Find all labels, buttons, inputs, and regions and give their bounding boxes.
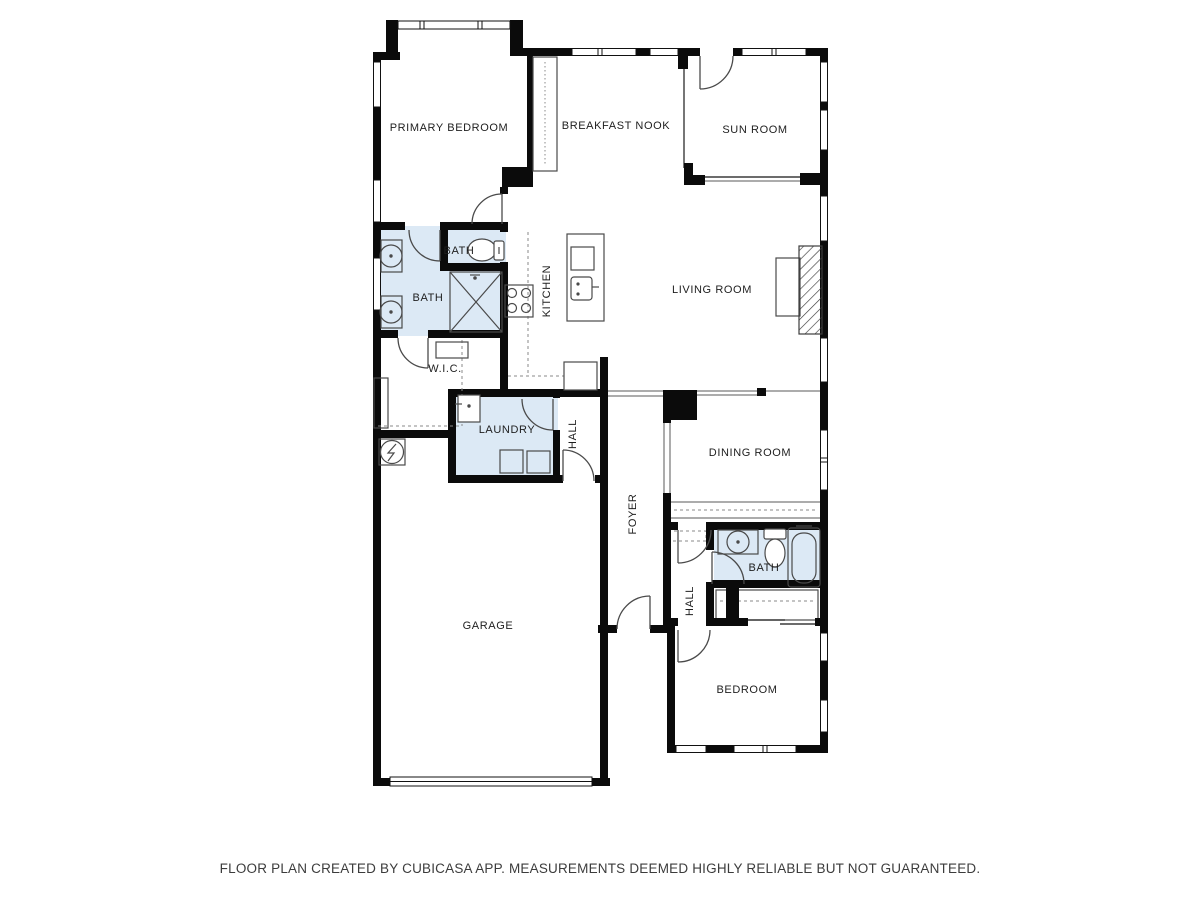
nook-cabinet	[533, 57, 557, 171]
room-label-dining-room: DINING ROOM	[709, 447, 791, 459]
fireplace-icon	[776, 246, 822, 334]
footer-disclaimer: FLOOR PLAN CREATED BY CUBICASA APP. MEAS…	[220, 861, 981, 876]
room-label-bath-upper: BATH	[444, 245, 475, 257]
room-label-bedroom: BEDROOM	[716, 684, 777, 696]
room-label-garage: GARAGE	[463, 620, 514, 632]
room-label-laundry: LAUNDRY	[479, 424, 536, 436]
room-label-hall-lower: HALL	[684, 586, 696, 616]
room-label-wic: W.I.C.	[428, 363, 462, 375]
room-label-sun-room: SUN ROOM	[722, 124, 787, 136]
floor-plan-drawing: PRIMARY BEDROOM BREAKFAST NOOK SUN ROOM …	[0, 0, 1200, 900]
room-label-bath-lower: BATH	[749, 562, 780, 574]
room-label-breakfast-nook: BREAKFAST NOOK	[562, 120, 671, 132]
doors	[398, 56, 744, 662]
laundry-sink	[455, 395, 480, 422]
kitchen-island	[567, 234, 604, 321]
water-heater-icon	[379, 439, 405, 465]
room-label-foyer: FOYER	[627, 494, 639, 535]
room-label-bath-primary: BATH	[413, 292, 444, 304]
room-label-primary-bedroom: PRIMARY BEDROOM	[390, 122, 509, 134]
stove-icon	[505, 285, 533, 317]
floor-plan-page: PRIMARY BEDROOM BREAKFAST NOOK SUN ROOM …	[0, 0, 1200, 900]
room-label-hall-upper: HALL	[567, 419, 579, 449]
room-label-kitchen: KITCHEN	[541, 265, 553, 317]
room-label-living-room: LIVING ROOM	[672, 284, 752, 296]
